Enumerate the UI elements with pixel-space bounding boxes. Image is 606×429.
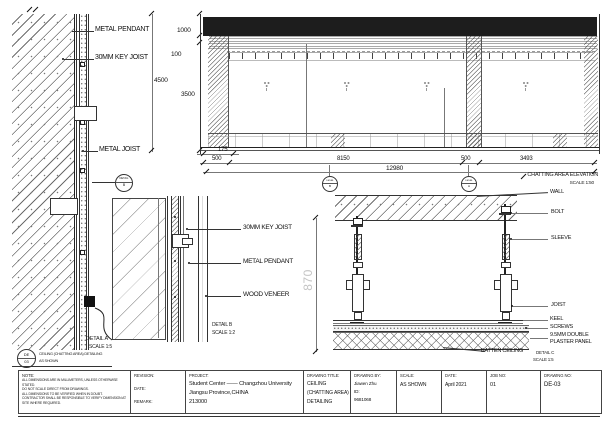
nut (353, 262, 363, 268)
underline (12, 366, 112, 367)
project-line2: Jiangsu Province,CHINA (189, 390, 300, 396)
sheet-ref-scale: AS SHOWN (39, 359, 58, 363)
dim-line (200, 163, 597, 164)
dwg-heading: DRAWING NO: (544, 373, 598, 378)
fastener-dot (174, 296, 176, 298)
dim-500-left: 500 (212, 156, 221, 162)
fastener (80, 168, 85, 173)
dim-1000: 1000 (177, 27, 191, 34)
stud-line (183, 196, 184, 342)
label-key-joist: 30MM KEY JOIST (95, 54, 148, 61)
ceiling-edge-line (227, 60, 595, 61)
wall-ornament (523, 82, 525, 84)
project-line3: 213000 (189, 399, 300, 405)
drawing-no-cell: DRAWING NO: DE-03 (541, 371, 601, 413)
bubble-letter: B (323, 185, 337, 188)
wood-veneer-panel (198, 196, 208, 342)
label-joist: JOIST (551, 302, 566, 308)
fastener (80, 250, 85, 255)
wall-hatch (12, 14, 75, 350)
dim-4500: 4500 (154, 77, 168, 84)
dim-870: 870 (301, 269, 315, 291)
leader-line (513, 306, 548, 307)
fastener (80, 62, 85, 67)
dim-100: 100 (171, 51, 181, 58)
date-label: DATE: (134, 386, 182, 391)
joist-bracket-body (352, 274, 364, 312)
wall-ornament (424, 82, 426, 84)
leader-line (190, 263, 241, 264)
wainscot-post (468, 134, 482, 147)
note-line: CONTRACTOR SHALL BE RESPONSIBLE TO VERIF… (22, 396, 127, 405)
bubble-leader (329, 165, 330, 176)
drawing-title-heading: DRAWING TITLE: (307, 373, 347, 378)
revision-cell: REVISION: DATE: REMARK: (131, 371, 186, 413)
bubble-letter: B (116, 184, 132, 187)
bracket-box (74, 106, 97, 121)
bubble-word: DETAIL (116, 178, 132, 183)
date-value: April 2021 (445, 382, 483, 388)
elevation-scale: SCALE 1:50 (470, 181, 594, 186)
label-plaster-line1: 9.5MM DOUBLE (550, 332, 589, 338)
detail-b-title: DETAIL B (212, 322, 232, 328)
dim-175: 175 (218, 147, 227, 153)
leader-line (512, 239, 548, 240)
scale-cell: SCALE: AS SHOWN (397, 371, 442, 413)
detail-c-scale: SCALE 1:5 (533, 357, 553, 362)
detail-a-scale: SCALE 1:5 (89, 344, 112, 350)
sleeve (354, 234, 362, 260)
drawing-by-name: Jiawen Zhu (354, 381, 393, 386)
dim-3493: 3493 (520, 156, 533, 162)
leader-line (527, 328, 548, 329)
drawing-by-id-label: ID: (354, 389, 393, 394)
dim-line-vertical (152, 14, 153, 152)
wainscot-post (553, 134, 567, 147)
pendant-light-row (229, 52, 593, 59)
washer (351, 225, 363, 227)
joint-line (306, 44, 307, 147)
dim-line-870 (316, 218, 317, 352)
drawing-title-line2: (CHATTING AREA) (307, 390, 347, 396)
detail-c-title: DETAIL C (536, 350, 554, 355)
floor-line (201, 147, 599, 148)
panel-inner-line (158, 198, 159, 338)
stud-line (167, 196, 168, 342)
leader-line (188, 229, 241, 230)
project-heading: PROJECT: (189, 373, 300, 378)
bubble-leader (468, 165, 469, 176)
sheet-ref-title: CEILING (CHATTING AREA) DETAILING (39, 352, 102, 356)
dwg-value: DE-03 (544, 382, 598, 388)
dim-500-right: 500 (461, 156, 470, 162)
hanger-foot (502, 312, 510, 320)
drawing-sheet: METAL PENDANT 30MM KEY JOIST METAL JOIST… (0, 0, 606, 429)
revision-label: REVISION: (134, 373, 182, 378)
label-wood-veneer-b: WOOD VENEER (243, 291, 289, 298)
label-key-joist-b: 30MM KEY JOIST (243, 224, 292, 231)
title-block: NOTE: ALL DIMENSIONS ARE IN MILLIMETERS,… (18, 370, 602, 414)
date-cell: DATE: April 2021 (442, 371, 487, 413)
leader-line (84, 151, 98, 152)
leader-line (207, 296, 241, 297)
fastener-dot (174, 260, 176, 262)
keel-line (333, 320, 523, 321)
label-sleeve: SLEEVE (551, 235, 571, 241)
label-screws: SCREWS (550, 324, 573, 330)
project-line1: Student Center —— Changzhou University (189, 381, 300, 387)
hanger-assembly (349, 216, 365, 324)
dim-tick (313, 349, 319, 355)
keel-line-2 (333, 323, 523, 324)
sheet-bottom-line (18, 416, 600, 417)
label-plaster-line2: PLASTER PANEL (550, 339, 592, 345)
stud-line (180, 196, 181, 342)
elevation-title: CHATTING AREA ELEVATION (470, 172, 598, 178)
scale-value: AS SHOWN (400, 382, 438, 388)
scale-heading: SCALE: (400, 373, 438, 378)
detail-b-section: DETAIL B SCALE 1:2 (112, 196, 302, 358)
label-metal-pendant: METAL PENDANT (95, 26, 149, 33)
job-no-cell: JOB NO: 01 (487, 371, 541, 413)
detail-ref-bubble: DETAIL B (115, 174, 133, 192)
wall-pier-left (208, 36, 229, 148)
wainscot-post (331, 134, 345, 147)
hanger-foot (354, 312, 362, 320)
drawing-by-heading: DRAWING BY: (354, 373, 393, 378)
leader-line (64, 59, 94, 60)
drawing-by-cell: DRAWING BY: Jiawen Zhu ID: 9681068 (351, 371, 397, 413)
bracket-box (50, 198, 78, 215)
drawing-title-cell: DRAWING TITLE: CEILING (CHATTING AREA) D… (304, 371, 351, 413)
remark-label: REMARK: (134, 399, 182, 404)
note-line: ALL DIMENSIONS ARE IN MILLIMETERS, UNLES… (22, 378, 127, 387)
leader-line (523, 320, 548, 321)
detail-b-scale: SCALE 1:2 (212, 330, 235, 336)
drawing-by-id: 9681068 (354, 397, 393, 402)
job-heading: JOB NO: (490, 373, 537, 378)
floor-line-2 (201, 150, 599, 151)
label-metal-pendant-b: METAL PENDANT (243, 258, 293, 265)
detail-a-title: DETAIL A (86, 336, 108, 342)
leader-line (72, 31, 94, 32)
sheet-code-bottom: 03 (18, 360, 35, 364)
pendant-bracket-small (182, 238, 193, 245)
leader-line (512, 213, 548, 214)
leader-line (92, 182, 115, 183)
break-tick (33, 7, 39, 13)
sleeve (502, 234, 510, 260)
label-bolt: BOLT (551, 209, 564, 215)
wall-pier-right (584, 36, 598, 148)
lined-ceiling-band (209, 36, 597, 50)
date-heading: DATE: (445, 373, 483, 378)
column-mid (466, 36, 482, 147)
wainscot-band (208, 133, 598, 148)
drawing-title-line3: DETAILING (307, 399, 347, 405)
drawing-title-line1: CEILING (307, 381, 347, 387)
note-cell: NOTE: ALL DIMENSIONS ARE IN MILLIMETERS,… (19, 371, 131, 413)
panel-line (76, 14, 77, 350)
dim-3500: 3500 (181, 91, 195, 98)
nut (501, 262, 511, 268)
project-cell: PROJECT: Student Center —— Changzhou Uni… (186, 371, 304, 413)
break-tick (27, 7, 33, 13)
fastener-dot (174, 216, 176, 218)
wall-ornament (344, 82, 346, 84)
dim-8150: 8150 (337, 156, 350, 162)
job-value: 01 (490, 382, 537, 388)
label-metal-joist: METAL JOIST (99, 146, 140, 153)
leader-line (530, 338, 548, 339)
wall-ornament (264, 82, 266, 84)
dim-total: 12980 (386, 165, 403, 172)
label-wall: WALL (550, 189, 564, 195)
label-keel: KEEL (550, 316, 563, 322)
bolt-head (353, 218, 363, 225)
chatting-area-elevation (200, 14, 600, 154)
fastener (80, 120, 85, 125)
ceiling-fascia-band (203, 17, 597, 36)
label-batten-ceiling: BATTEN CEILING (481, 348, 523, 354)
